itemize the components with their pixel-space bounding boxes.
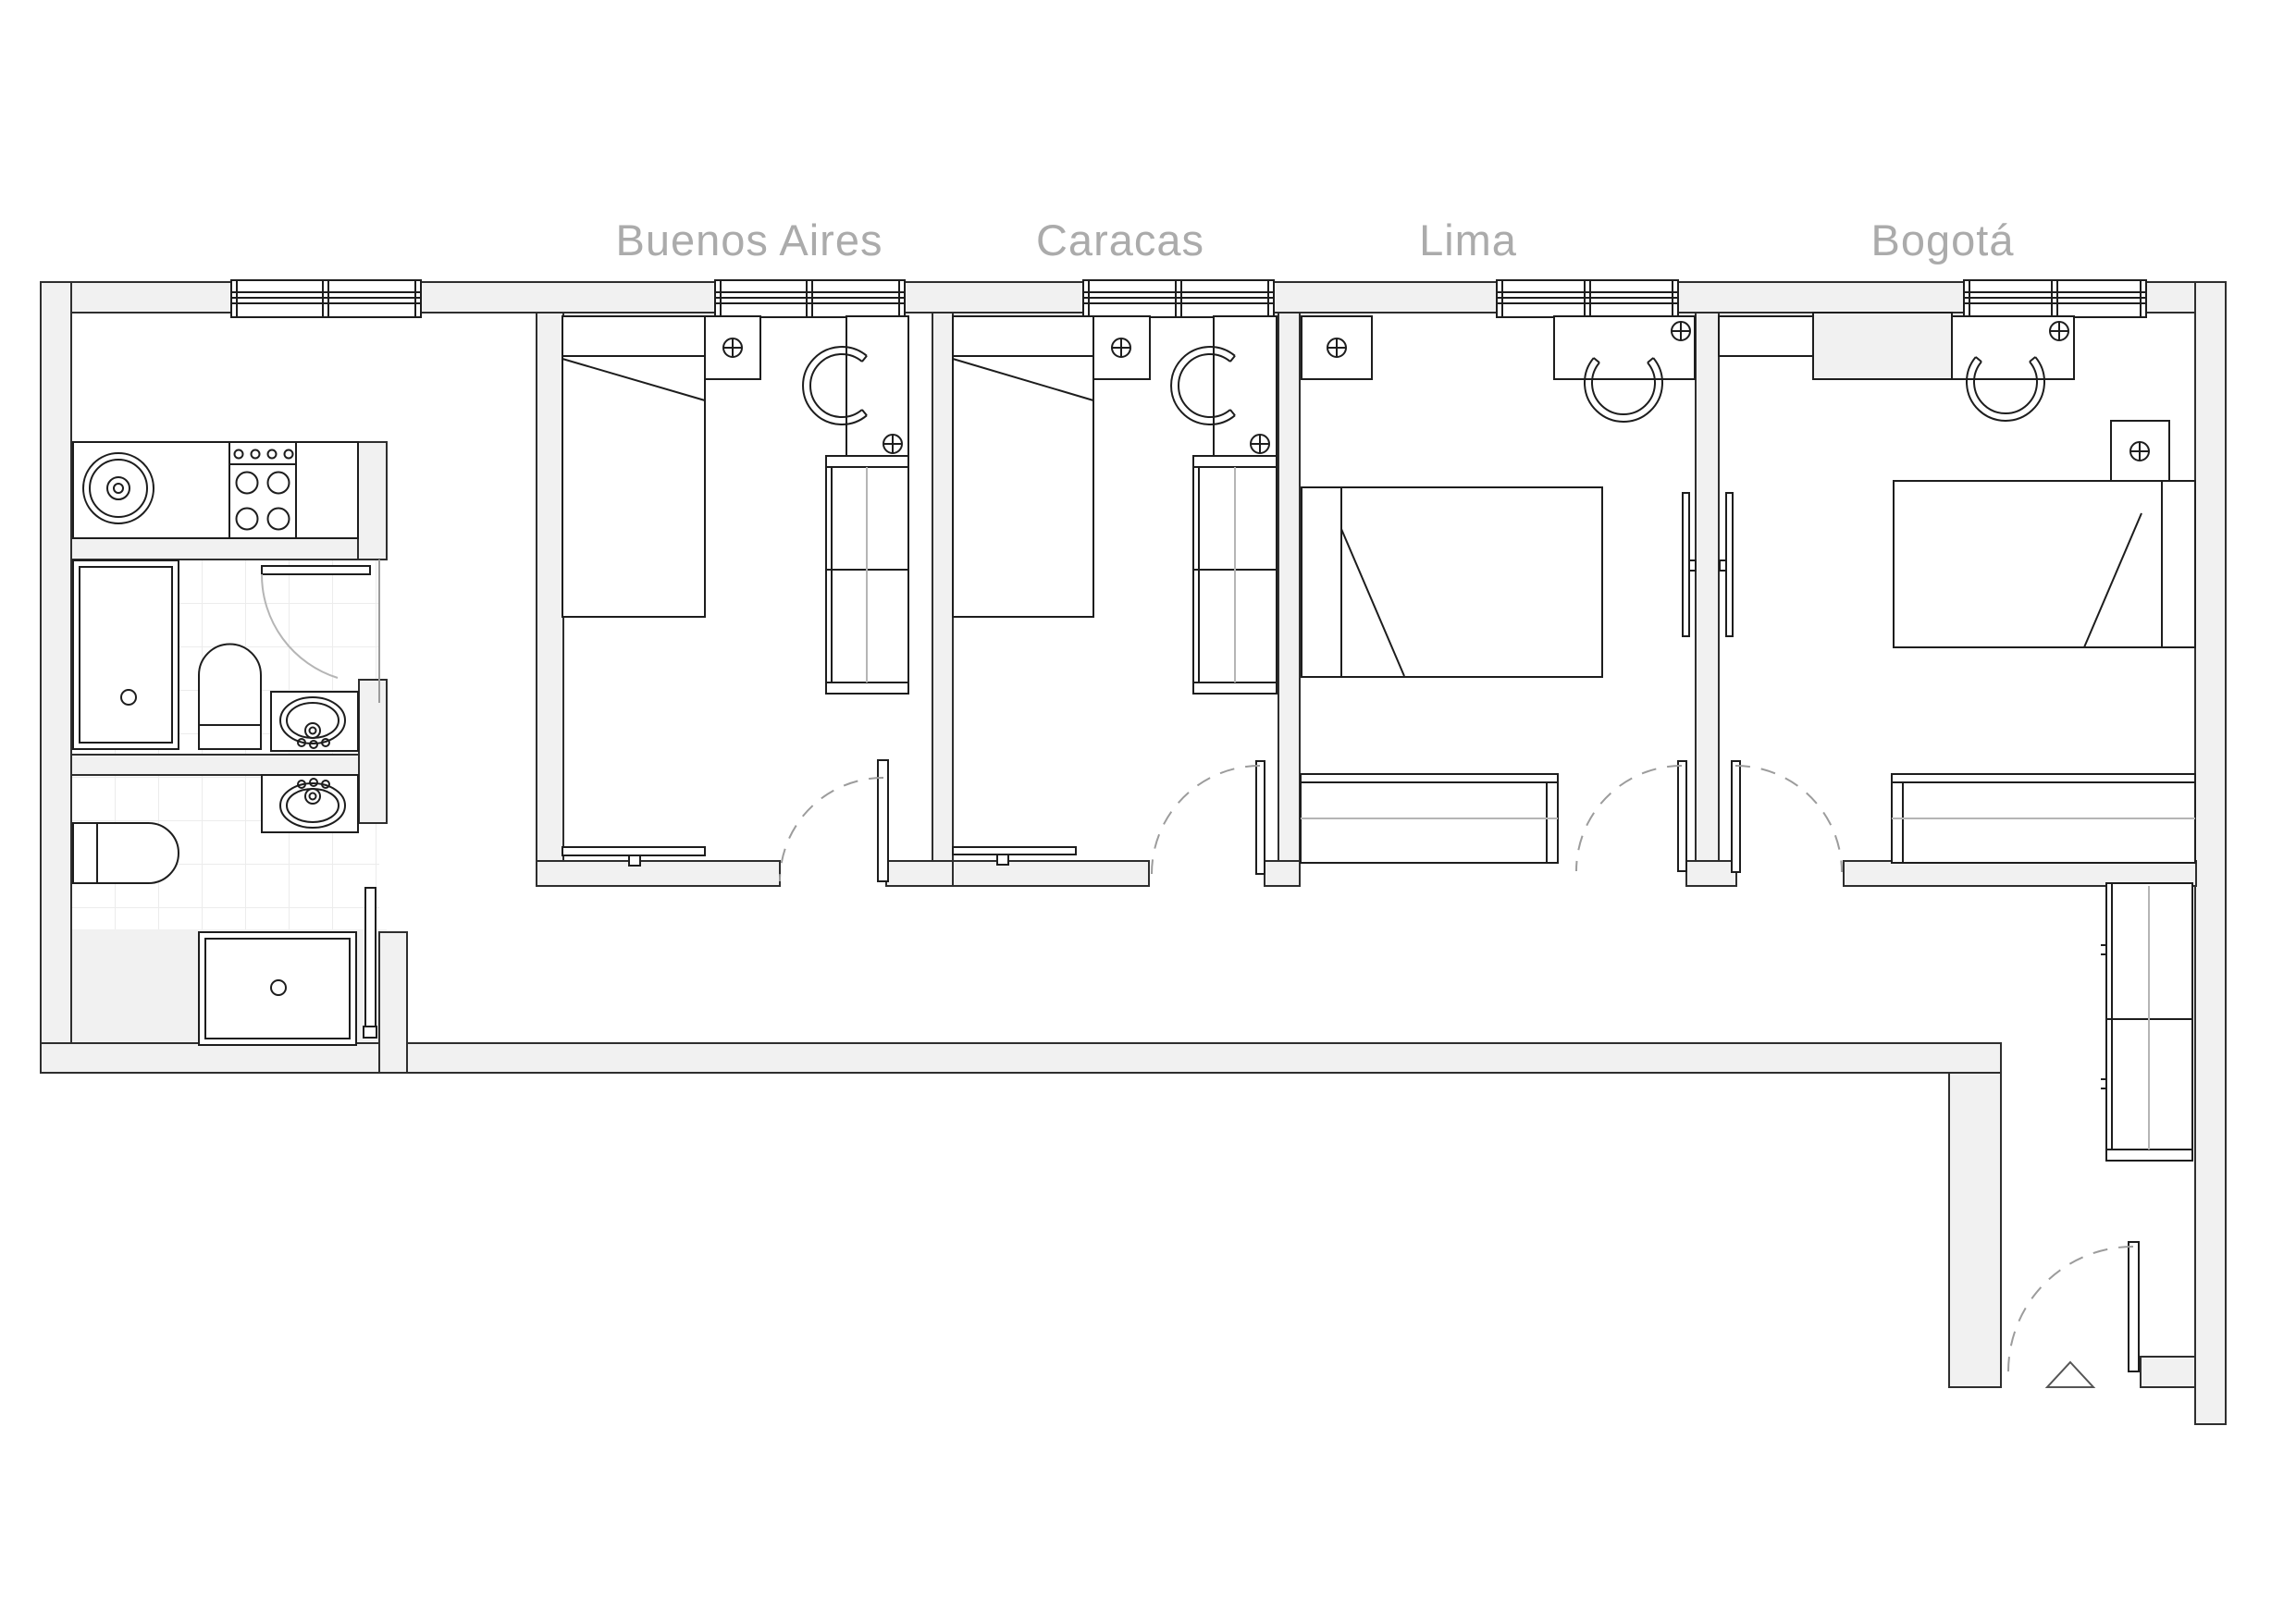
- wall-buenosaires-caracas: [932, 313, 953, 886]
- wall-entry-left-post: [1949, 1073, 2001, 1387]
- single-bed: [953, 316, 1093, 617]
- toilet-icon: [97, 823, 179, 883]
- desk: [1214, 316, 1277, 456]
- wall-radiator-foot: [1720, 560, 1726, 571]
- outlet-symbol-icon: [2130, 442, 2149, 461]
- door-arc: [1735, 766, 1842, 872]
- entry-door-leaf: [2129, 1242, 2139, 1371]
- desk: [846, 316, 908, 456]
- radiator: [953, 847, 1076, 855]
- kitchen: [73, 442, 358, 538]
- sliding-door-leaf: [365, 888, 376, 1027]
- wall-lima-bogota-plinth: [1686, 861, 1736, 886]
- outlet-symbol-icon: [723, 338, 742, 357]
- window-lima: [1497, 280, 1678, 317]
- shower-tray-icon: [73, 560, 179, 749]
- wall-bogota-bottom: [1844, 861, 2196, 886]
- room-label-buenos-aires: Buenos Aires: [616, 218, 883, 262]
- window-bogota: [1964, 280, 2146, 317]
- outlet-symbol-icon: [1327, 338, 1346, 357]
- single-bed: [562, 316, 705, 617]
- wall-entry-right-post: [2141, 1357, 2195, 1387]
- wall-radiator: [1726, 493, 1733, 636]
- entry-triangle-marker-icon: [2047, 1362, 2093, 1387]
- entry-door-arc: [2008, 1247, 2133, 1371]
- outlet-symbol-icon: [1112, 338, 1130, 357]
- outlet-symbol-icon: [2050, 322, 2068, 340]
- radiator: [562, 847, 705, 855]
- double-bed: [1302, 487, 1602, 677]
- wall-caracas-bottom: [953, 861, 1149, 886]
- wall-radiator-foot: [1689, 560, 1696, 571]
- wall-exterior-left: [41, 282, 71, 1073]
- room-label-lima: Lima: [1419, 218, 1517, 262]
- room-buenos-aires: [562, 316, 908, 881]
- wall-bathroom-right-lower: [379, 932, 407, 1073]
- wall-hallway-bottom: [41, 1043, 2001, 1073]
- window-buenos-aires: [715, 280, 905, 317]
- door-leaf-bathroom-top: [262, 566, 370, 574]
- desk: [1952, 316, 2074, 379]
- shower-tray-icon: [199, 932, 356, 1045]
- outlet-symbol-icon: [1251, 435, 1269, 453]
- wall-caracas-lima: [1278, 313, 1300, 861]
- door-arc: [1576, 766, 1682, 871]
- closet-box: [1719, 316, 1813, 356]
- wall-caracas-lima-plinth: [1265, 861, 1300, 886]
- wall-bathroom-right-stub: [359, 680, 387, 823]
- wall-bathroom-divider: [71, 755, 379, 775]
- door-leaf: [1256, 761, 1265, 874]
- window-caracas: [1083, 280, 1274, 317]
- door-leaf: [1732, 761, 1740, 872]
- door-arc: [780, 778, 883, 881]
- wall-buenosaires-bottom-right: [886, 861, 953, 886]
- wall-under-counter: [71, 538, 358, 559]
- wall-exterior-right: [2195, 282, 2226, 1424]
- wall-kitchen-buenosaires: [537, 313, 563, 886]
- room-label-caracas: Caracas: [1036, 218, 1204, 262]
- outlet-symbol-icon: [883, 435, 902, 453]
- single-bed: [1894, 481, 2195, 647]
- radiator-foot: [997, 855, 1008, 865]
- door-arc: [1152, 766, 1260, 874]
- room-lima: [1301, 316, 1696, 871]
- wall-radiator: [1683, 493, 1689, 636]
- radiator-foot: [629, 855, 640, 866]
- room-bogota: [1719, 313, 2195, 872]
- wall-buenosaires-bottom-left: [537, 861, 780, 886]
- toilet-icon: [199, 645, 261, 750]
- hallway: [2008, 883, 2192, 1387]
- room-caracas: [953, 316, 1277, 874]
- room-label-bogota: Bogotá: [1871, 218, 2015, 262]
- window-kitchen: [231, 280, 421, 317]
- toilet-tank: [73, 823, 97, 883]
- floor-plan-canvas: Buenos Aires Caracas Lima Bogotá: [0, 0, 2296, 1623]
- wall-kitchen-stub: [358, 442, 387, 559]
- outlet-symbol-icon: [1672, 322, 1690, 340]
- bulkhead-shaft: [1813, 313, 1952, 379]
- wall-lima-bogota: [1696, 313, 1719, 861]
- door-leaf: [1678, 761, 1686, 871]
- sliding-door-foot: [364, 1027, 376, 1038]
